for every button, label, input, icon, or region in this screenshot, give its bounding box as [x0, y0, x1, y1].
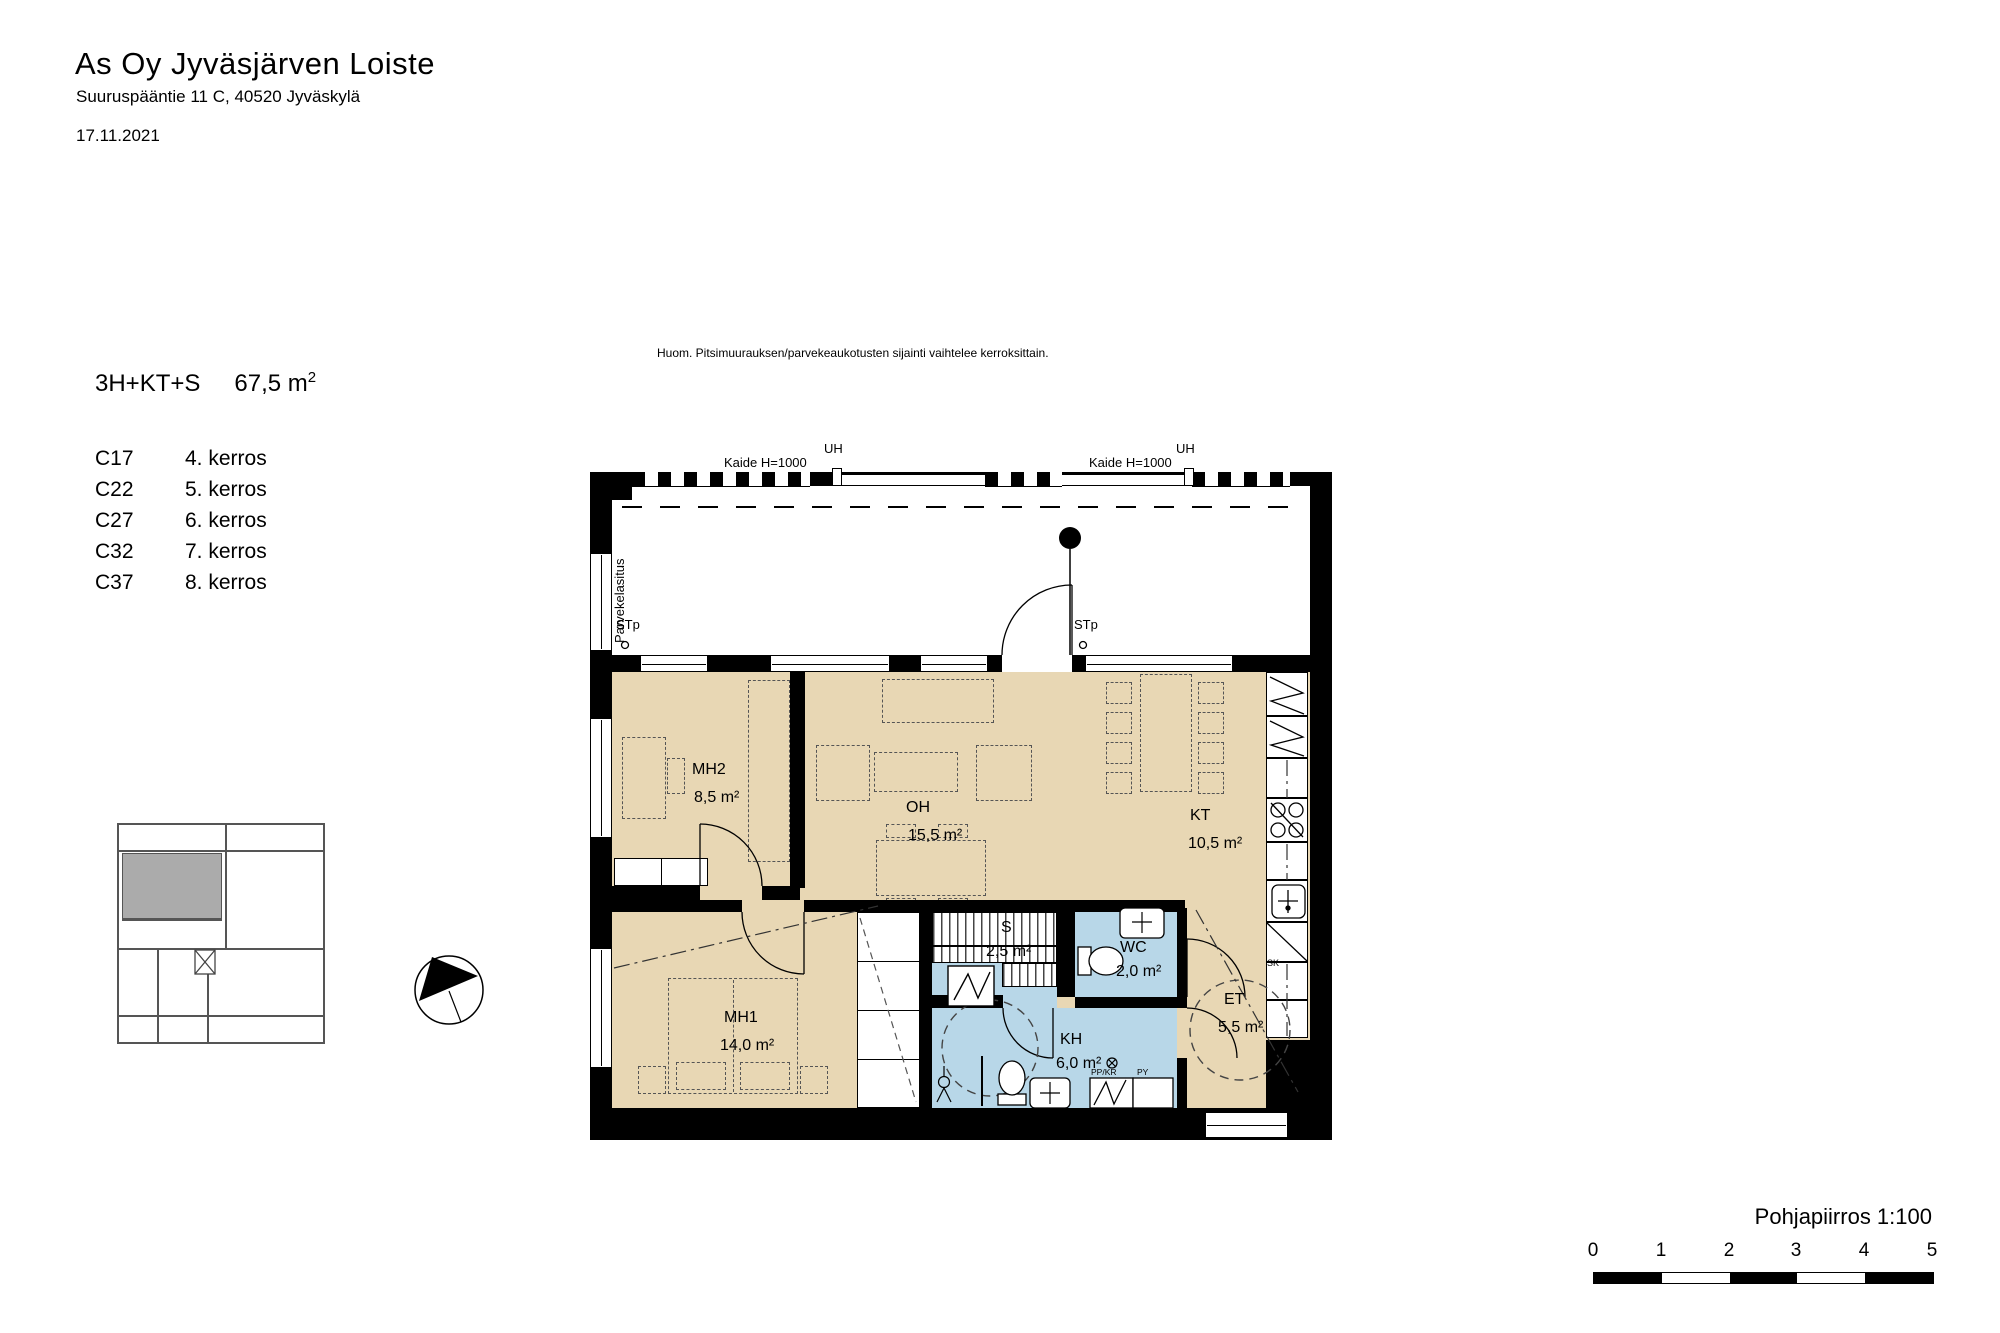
scale-tick: 3 [1791, 1240, 1802, 1262]
uh-label-left: UH [824, 442, 843, 455]
plan-scale-title: Pohjapiirros 1:100 [1755, 1206, 1932, 1228]
room-area-wc: 2,0 m² [1116, 964, 1161, 980]
unit-floor: 6. kerros [185, 509, 267, 532]
wall-wc-bottom [1075, 997, 1177, 1008]
scale-segment [1662, 1273, 1730, 1283]
kt-chair [1198, 712, 1224, 734]
key-plan-line [117, 1015, 325, 1017]
kt-chair [1106, 772, 1132, 794]
mh1-bed-divider [733, 980, 734, 1092]
kt-dining-table [1140, 674, 1192, 792]
entrance-door [1205, 1112, 1288, 1138]
uh-label-right: UH [1176, 442, 1195, 455]
unit-row: C174. kerros [95, 443, 267, 474]
room-area-mh2: 8,5 m² [694, 790, 739, 806]
unit-row: C276. kerros [95, 505, 267, 536]
scale-tick: 5 [1927, 1240, 1938, 1262]
cleaning-closet-label: SK [1267, 959, 1279, 968]
mh1-pillow [676, 1062, 726, 1090]
railing-label-left: Kaide H=1000 [724, 456, 807, 469]
bedroom2-window [590, 718, 612, 838]
scale-tick: 0 [1588, 1240, 1599, 1262]
room-label-mh1: MH1 [724, 1010, 758, 1026]
balcony-glazing-window [590, 553, 612, 651]
kt-chair [1198, 682, 1224, 704]
room-label-et: ET [1224, 992, 1244, 1008]
key-plan-line [225, 823, 227, 950]
mh2-side-table [667, 758, 685, 794]
kitchen-counter [1266, 758, 1308, 798]
scale-segment [1730, 1273, 1798, 1283]
sauna-bench-upper [932, 912, 1057, 946]
oh-armchair-right [976, 745, 1032, 801]
apartment-type-line: 3H+KT+S67,5 m2 [95, 370, 316, 396]
balcony-glazing-label: Parvekelasitus [613, 518, 626, 643]
dishwasher-space [1266, 922, 1308, 962]
wardrobe-divider [857, 1010, 920, 1011]
document-title: As Oy Jyväsjärven Loiste [75, 48, 435, 79]
apartment-type: 3H+KT+S [95, 370, 200, 397]
scale-segment [1594, 1273, 1662, 1283]
unit-floor: 8. kerros [185, 571, 267, 594]
kt-chair [1106, 682, 1132, 704]
stp-label-right: STp [1074, 618, 1098, 631]
unit-row: C378. kerros [95, 567, 267, 598]
livingroom-window2 [920, 655, 988, 672]
stove [1266, 798, 1308, 842]
unit-id: C22 [95, 474, 185, 505]
dryer-label: PY [1137, 1068, 1148, 1077]
room-label-mh2: MH2 [692, 762, 726, 778]
unit-id: C17 [95, 443, 185, 474]
north-arrow-icon [415, 956, 483, 1024]
mh2-bed [622, 737, 666, 819]
wall-sauna-wc [1057, 912, 1075, 997]
kitchen-window [1085, 655, 1233, 672]
closet [1266, 1000, 1308, 1038]
kitchen-counter [1266, 842, 1308, 880]
key-plan-line [117, 948, 325, 950]
document-address: Suuruspääntie 11 C, 40520 Jyväskylä [76, 88, 360, 105]
uh-vent-mark [1184, 468, 1194, 486]
document-date: 17.11.2021 [76, 127, 160, 144]
wall-sauna-bottom [920, 995, 1003, 1008]
room-area-kt: 10,5 m² [1188, 836, 1242, 852]
room-area-s: 2,5 m² [986, 944, 1031, 960]
unit-floor: 7. kerros [185, 540, 267, 563]
wall-mh2-oh [790, 672, 805, 888]
balcony-railing [1062, 472, 1184, 486]
stp-point-icon [1080, 642, 1087, 649]
scale-bar [1593, 1272, 1934, 1284]
unit-list: C174. kerros C225. kerros C276. kerros C… [95, 443, 267, 598]
scale-tick: 4 [1859, 1240, 1870, 1262]
key-plan-line [122, 919, 222, 921]
apartment-area: 67,5 m [234, 370, 307, 397]
kt-chair [1106, 712, 1132, 734]
kitchen-sink-cabinet [1266, 880, 1308, 922]
unit-id: C27 [95, 505, 185, 536]
room-area-et: 5,5 m² [1218, 1020, 1263, 1036]
balcony-overhang-dashed-line [622, 506, 1305, 508]
lace-brickwork-band [632, 472, 810, 487]
fridge-cabinet [1266, 672, 1308, 716]
oh-armchair-left [816, 745, 870, 801]
bedroom2-balcony-window [640, 655, 708, 672]
mh2-wardrobe-divider [661, 858, 662, 886]
room-label-kt: KT [1190, 808, 1210, 824]
unit-floor: 4. kerros [185, 447, 267, 470]
unit-floor: 5. kerros [185, 478, 267, 501]
room-area-kh: 6,0 m² [1056, 1056, 1101, 1072]
sauna-doorway-floor [1003, 995, 1057, 1008]
sauna-bench-step [1002, 963, 1057, 987]
mh2-closet [748, 680, 790, 862]
oh-coffee-table [874, 752, 958, 792]
key-plan-line [117, 850, 325, 852]
key-plan-highlighted-unit [122, 853, 222, 919]
room-label-s: S [1001, 920, 1012, 936]
unit-row: C225. kerros [95, 474, 267, 505]
scale-segment [1865, 1273, 1933, 1283]
mh2-door-opening [700, 886, 762, 900]
unit-id: C32 [95, 536, 185, 567]
oh-dining-table [876, 840, 986, 896]
kt-chair [1198, 772, 1224, 794]
balcony-column [1059, 527, 1081, 549]
kt-chair [1106, 742, 1132, 764]
scale-tick: 1 [1656, 1240, 1667, 1262]
wardrobe-divider [857, 1059, 920, 1060]
unit-row: C327. kerros [95, 536, 267, 567]
livingroom-window [770, 655, 890, 672]
freezer-cabinet [1266, 716, 1308, 758]
room-area-oh: 15,5 m² [908, 828, 962, 844]
room-label-kh: KH [1060, 1032, 1082, 1048]
balcony-door-opening [1002, 655, 1072, 672]
wall-corridor [612, 900, 1185, 912]
mh1-nightstand [638, 1066, 666, 1094]
key-plan-line [207, 948, 209, 1043]
wall-wardrobe [920, 912, 932, 1108]
wardrobe-divider [857, 961, 920, 962]
unit-id: C37 [95, 567, 185, 598]
lace-brickwork-band [985, 472, 1062, 487]
kt-chair [1198, 742, 1224, 764]
bathroom-floor [932, 1008, 1177, 1108]
room-area-mh1: 14,0 m² [720, 1038, 774, 1054]
room-label-oh: OH [906, 800, 930, 816]
floor-variation-note: Huom. Pitsimuurauksen/parvekeaukotusten … [657, 347, 1049, 359]
scale-tick: 2 [1724, 1240, 1735, 1262]
balcony-door-arc [1002, 585, 1072, 655]
apartment-area-sup: 2 [308, 369, 316, 386]
balcony-railing [842, 472, 985, 486]
oh-sideboard [882, 679, 994, 723]
uh-vent-mark [832, 468, 842, 486]
lace-brickwork-band [1192, 472, 1290, 487]
scale-bar-ticks: 0 1 2 3 4 5 [1593, 1240, 1932, 1264]
key-plan-line [157, 948, 159, 1043]
kh-door-opening [1177, 1008, 1187, 1058]
bedroom1-window [590, 948, 612, 1068]
railing-label-right: Kaide H=1000 [1089, 456, 1172, 469]
mh1-nightstand [800, 1066, 828, 1094]
mh1-door-opening [742, 900, 804, 912]
room-label-wc: WC [1120, 940, 1147, 956]
scale-segment [1797, 1273, 1865, 1283]
mh1-pillow [740, 1062, 790, 1090]
